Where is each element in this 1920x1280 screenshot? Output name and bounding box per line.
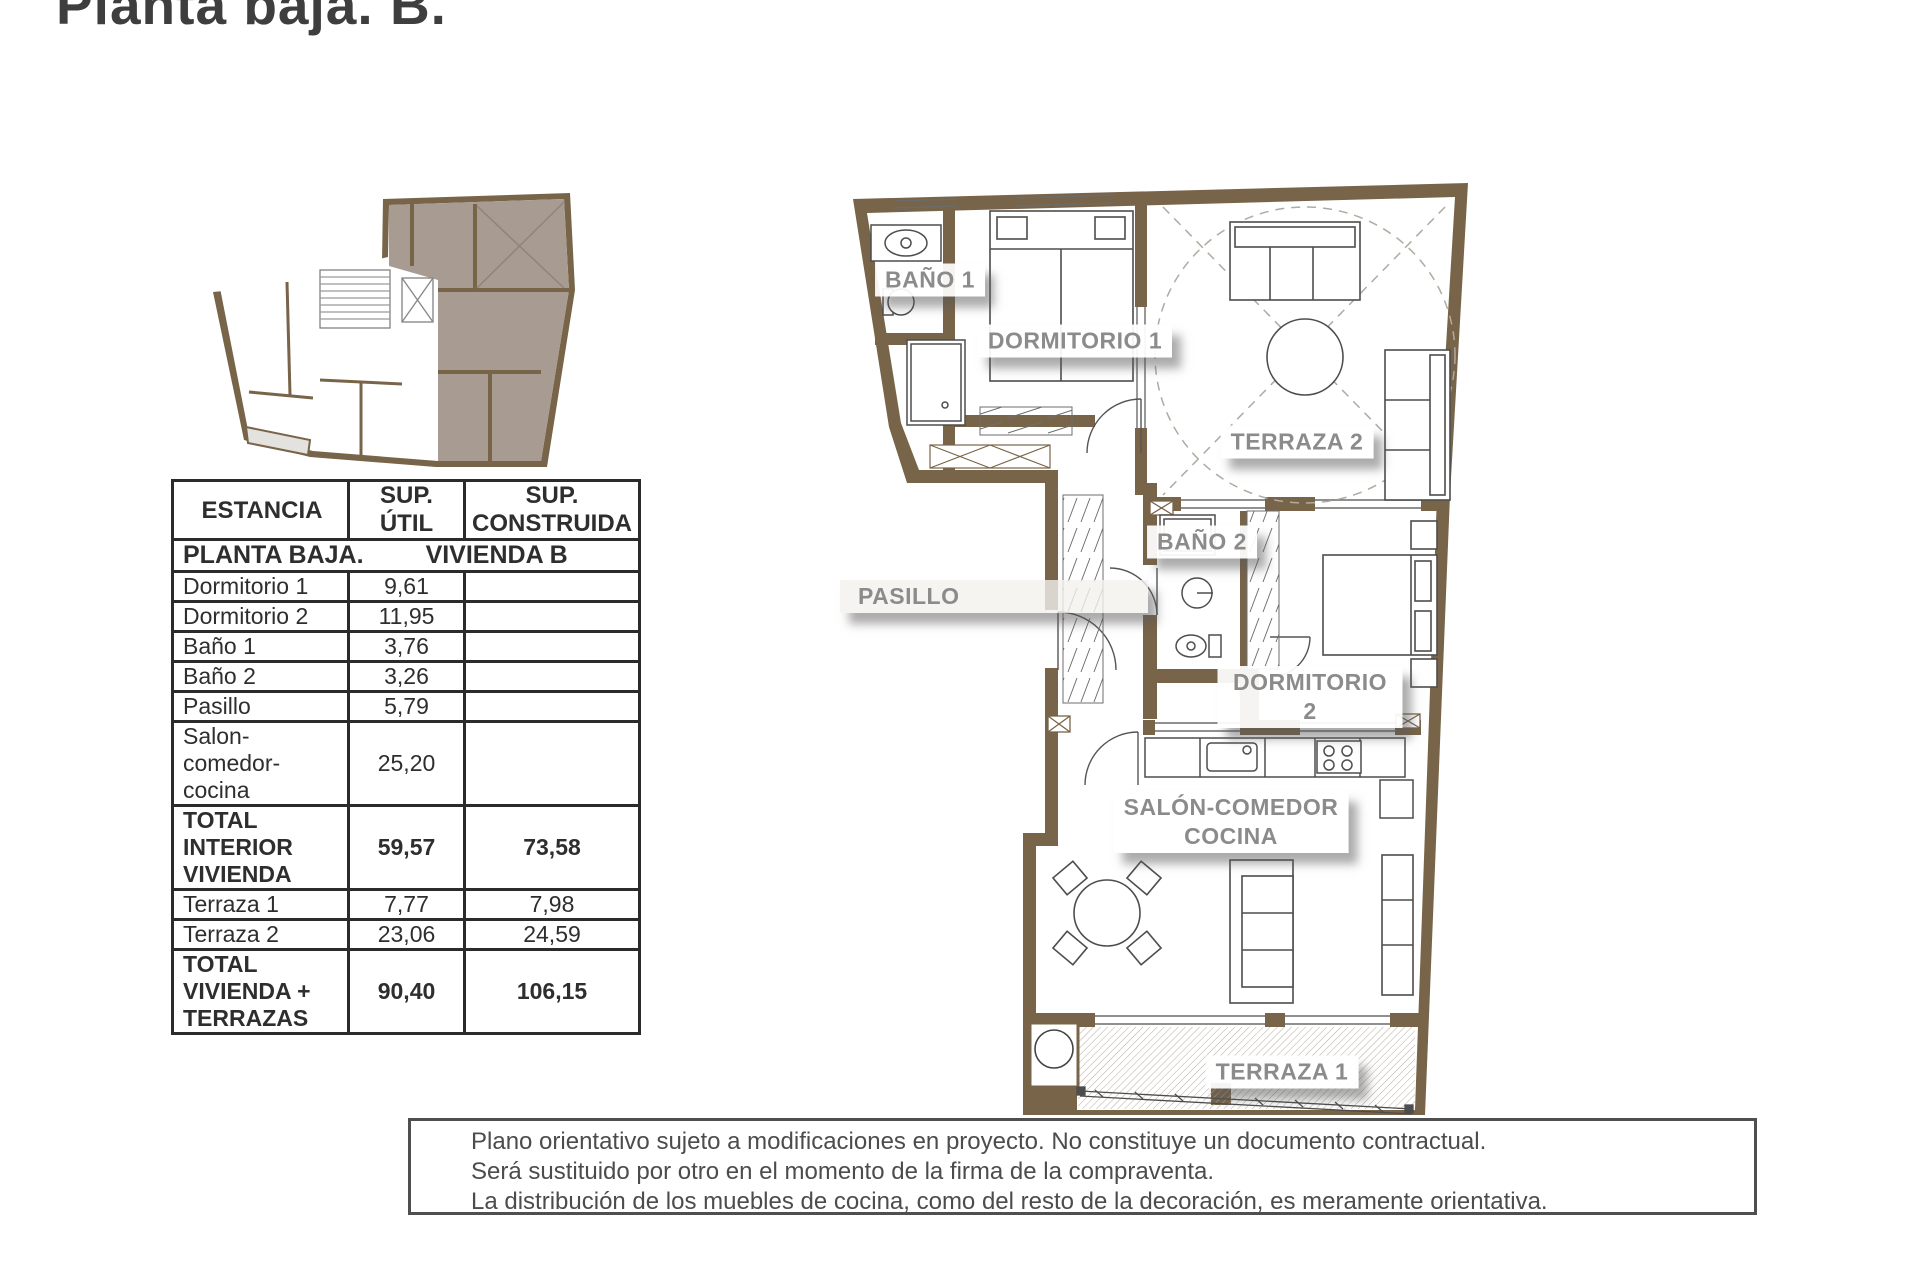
areas-table: ESTANCIA SUP. ÚTIL SUP. CONSTRUIDA PLANT… (171, 479, 641, 1035)
page-title: Planta baja. B. (56, 0, 447, 37)
room-label-banyo1: BAÑO 1 (875, 264, 985, 297)
col-header-estancia: ESTANCIA (173, 481, 349, 540)
floor-plan-drawing (845, 165, 1495, 1115)
disclaimer-line: Será sustituido por otro en el momento d… (471, 1157, 1754, 1187)
floor-plan: BAÑO 1 DORMITORIO 1 TERRAZA 2 BAÑO 2 PAS… (845, 165, 1495, 1115)
room-label-pasillo: PASILLO (840, 580, 1148, 613)
table-row: Baño 2 3,26 (173, 662, 640, 692)
room-label-terraza1: TERRAZA 1 (1206, 1056, 1359, 1089)
room-label-banyo2: BAÑO 2 (1147, 526, 1257, 559)
table-row: Dormitorio 2 11,95 (173, 602, 640, 632)
section-label-right: VIVIENDA B (426, 541, 568, 570)
table-row-total-vivienda: TOTAL VIVIENDA + TERRAZAS 90,40 106,15 (173, 950, 640, 1034)
room-label-terraza2: TERRAZA 2 (1221, 426, 1374, 459)
key-plan (180, 140, 590, 480)
disclaimer-line: Plano orientativo sujeto a modificacione… (471, 1127, 1754, 1157)
room-label-dormitorio1: DORMITORIO 1 (978, 325, 1172, 358)
table-section-row: PLANTA BAJA. VIVIENDA B (173, 540, 640, 572)
table-row: Terraza 1 7,77 7,98 (173, 890, 640, 920)
room-label-salon: SALÓN-COMEDOR COCINA (1114, 791, 1349, 853)
disclaimer-box: Plano orientativo sujeto a modificacione… (408, 1118, 1757, 1215)
section-label-left: PLANTA BAJA. (174, 541, 364, 570)
key-plan-drawing (180, 140, 590, 480)
disclaimer-line: La distribución de los muebles de cocina… (471, 1187, 1754, 1217)
table-row: Terraza 2 23,06 24,59 (173, 920, 640, 950)
table-row-total-interior: TOTAL INTERIOR VIVIENDA 59,57 73,58 (173, 806, 640, 890)
table-row: Baño 1 3,76 (173, 632, 640, 662)
entry-closet-x (930, 445, 1050, 468)
table-row: Pasillo 5,79 (173, 692, 640, 722)
page: Planta baja. B. (0, 0, 1920, 1280)
table-row: Salon- comedor- cocina 25,20 (173, 722, 640, 806)
room-label-dormitorio2: DORMITORIO 2 (1218, 666, 1403, 728)
table-header-row: ESTANCIA SUP. ÚTIL SUP. CONSTRUIDA (173, 481, 640, 540)
col-header-sup-construida: SUP. CONSTRUIDA (465, 481, 640, 540)
col-header-sup-util: SUP. ÚTIL (349, 481, 465, 540)
table-row: Dormitorio 1 9,61 (173, 572, 640, 602)
